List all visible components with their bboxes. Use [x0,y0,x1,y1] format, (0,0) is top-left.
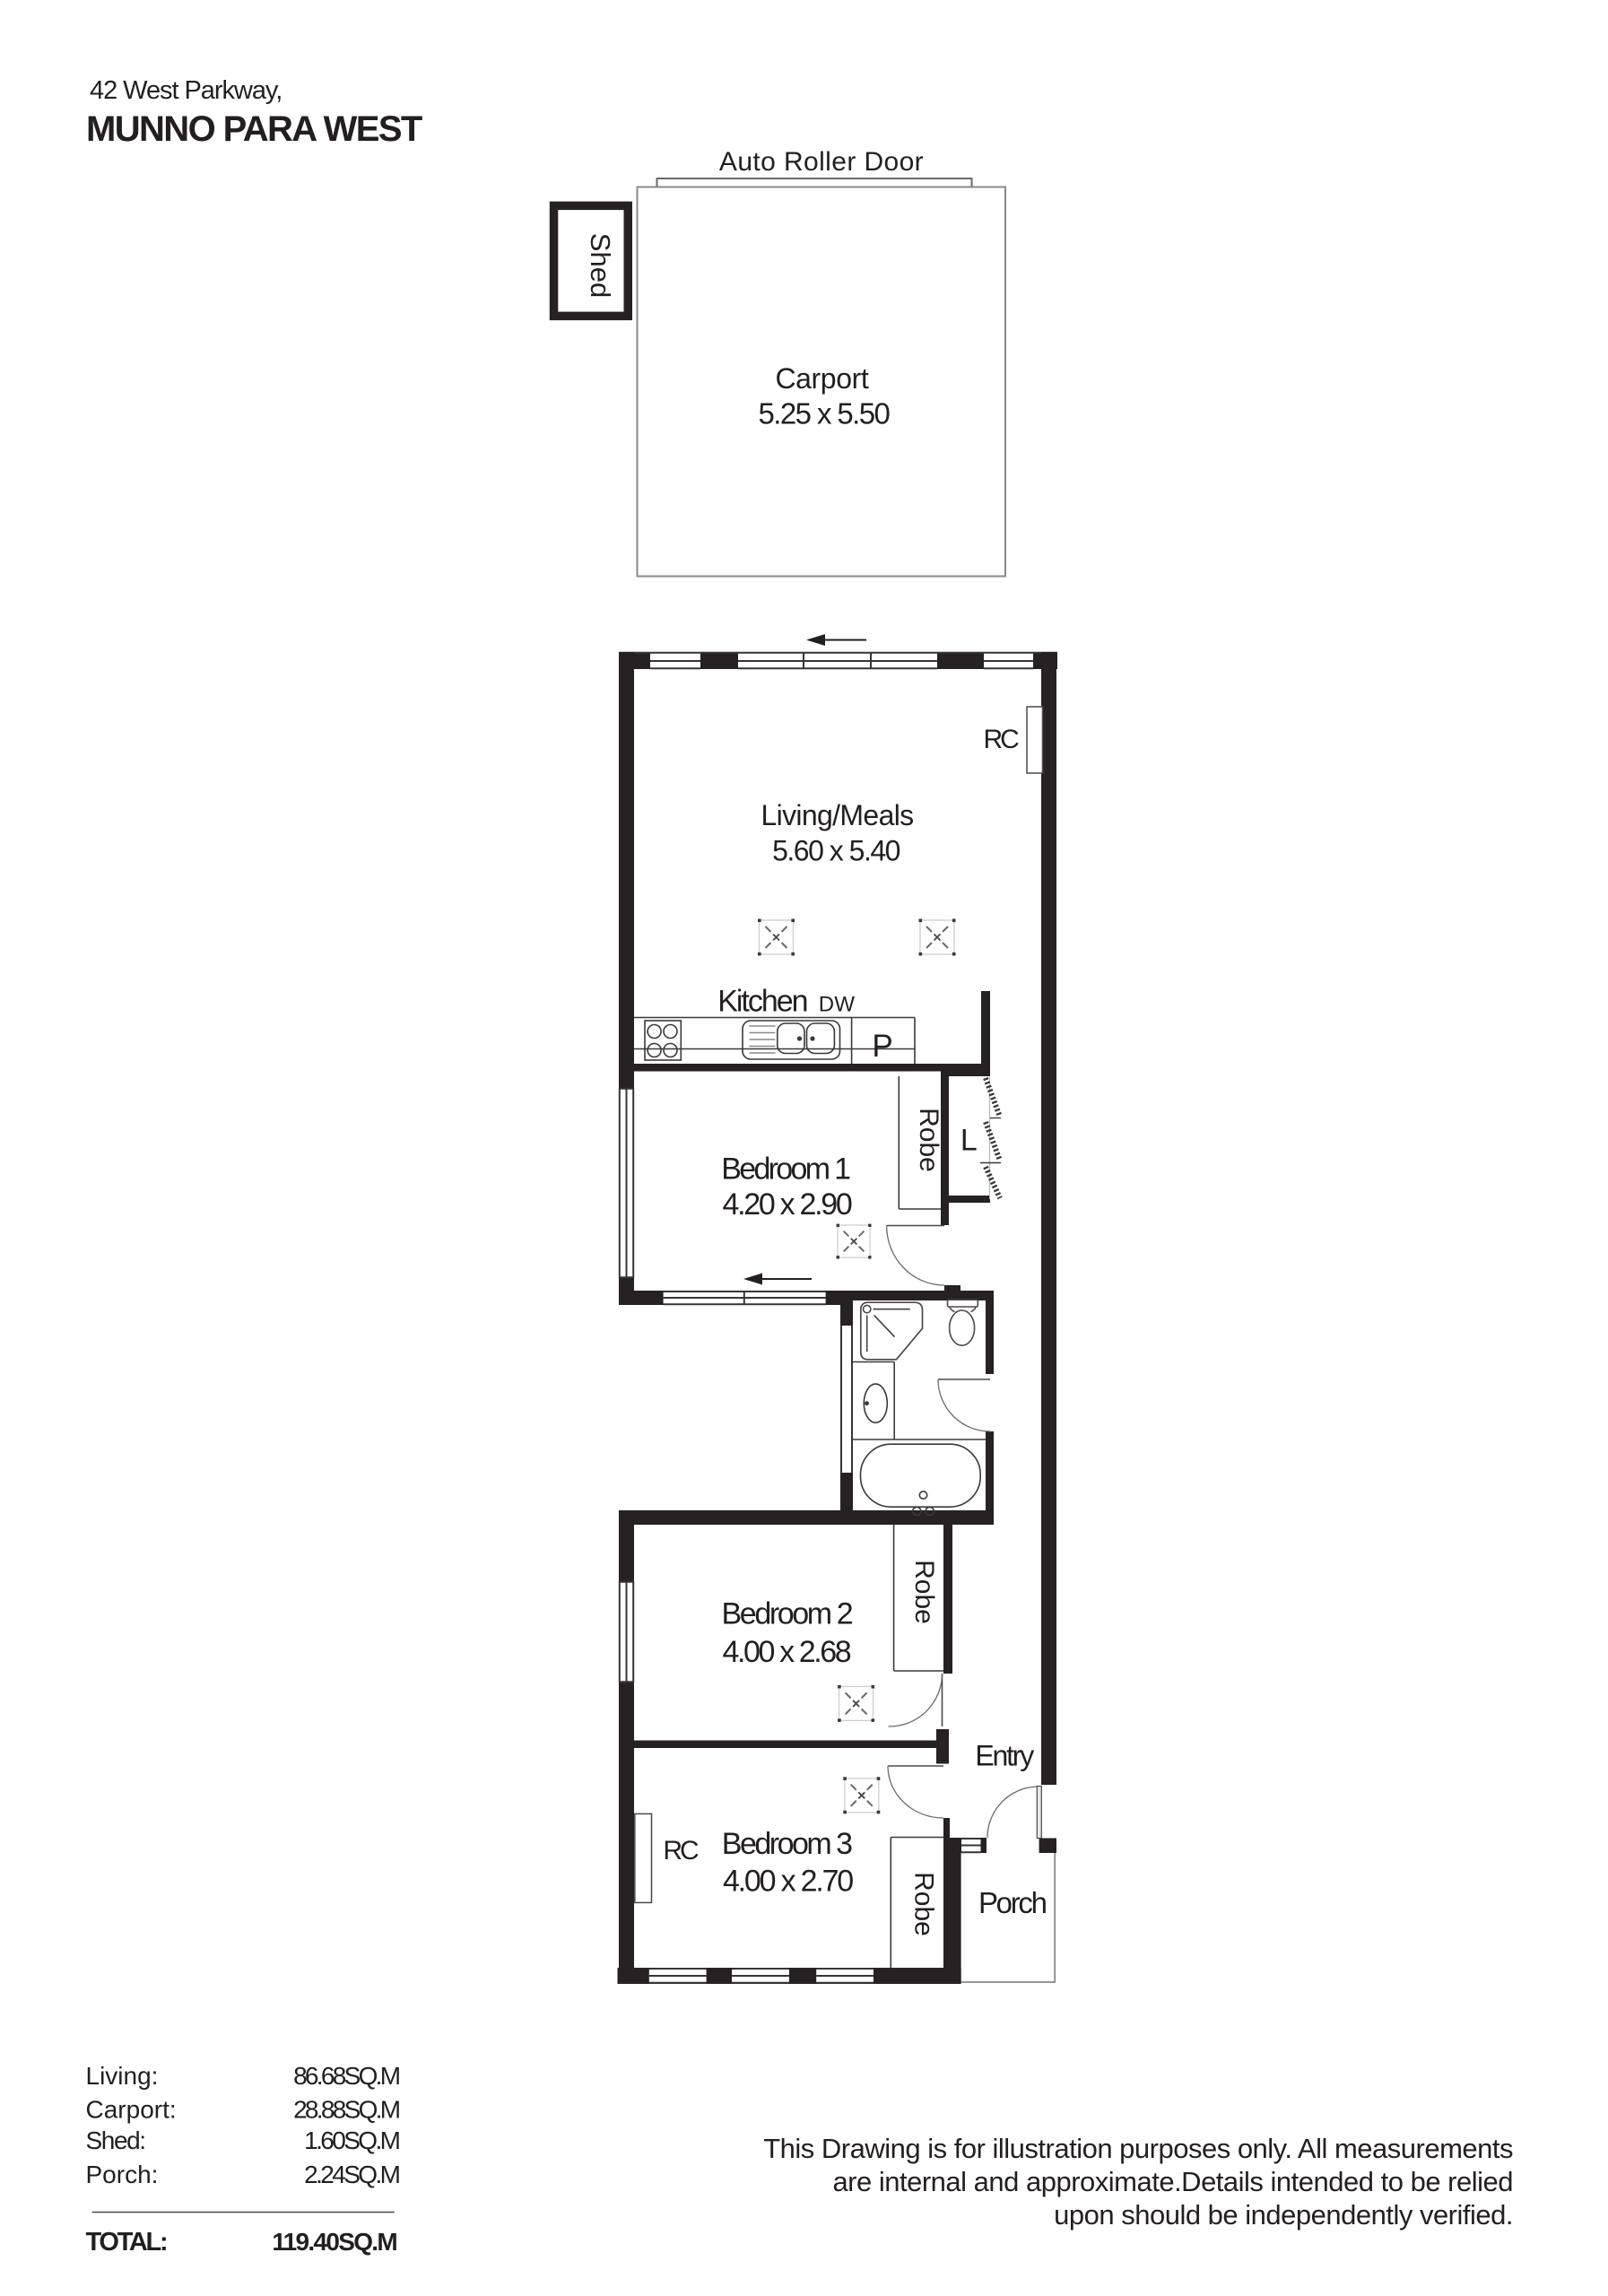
svg-text:RC: RC [984,725,1020,754]
svg-text:42 West Parkway,: 42 West Parkway, [90,76,282,105]
svg-text:Robe: Robe [909,1560,939,1624]
svg-text:Bedroom 1: Bedroom 1 [721,1152,850,1187]
svg-text:4.00 x 2.70: 4.00 x 2.70 [723,1865,853,1899]
svg-text:are internal and approximate.D: are internal and approximate.Details int… [832,2166,1513,2197]
svg-text:Porch:: Porch: [86,2161,159,2188]
svg-text:Kitchen: Kitchen [717,985,806,1019]
svg-text:86.68SQ.M: 86.68SQ.M [293,2062,400,2090]
svg-text:Auto Roller Door: Auto Roller Door [719,147,924,177]
svg-text:5.60 x 5.40: 5.60 x 5.40 [772,835,900,867]
svg-text:Carport:: Carport: [86,2096,177,2124]
svg-text:119.40SQ.M: 119.40SQ.M [272,2228,396,2256]
svg-text:Bedroom 3: Bedroom 3 [722,1827,852,1861]
svg-text:1.60SQ.M: 1.60SQ.M [304,2126,400,2154]
svg-text:P: P [872,1029,892,1064]
svg-text:This Drawing is for illustrati: This Drawing is for illustration purpose… [763,2133,1513,2164]
svg-text:2.24SQ.M: 2.24SQ.M [304,2161,400,2188]
svg-text:4.20 x 2.90: 4.20 x 2.90 [723,1187,852,1222]
svg-text:RC: RC [663,1836,699,1865]
svg-text:upon should be independently v: upon should be independently verified. [1054,2199,1513,2231]
svg-text:Robe: Robe [914,1108,943,1172]
svg-text:4.00 x 2.68: 4.00 x 2.68 [722,1635,850,1669]
svg-text:Shed: Shed [585,233,616,298]
svg-text:MUNNO PARA WEST: MUNNO PARA WEST [86,109,422,149]
svg-text:Living:: Living: [86,2062,159,2090]
svg-text:L: L [960,1124,978,1158]
svg-text:5.25 x 5.50: 5.25 x 5.50 [759,397,891,430]
svg-text:Bedroom 2: Bedroom 2 [722,1597,853,1631]
svg-text:TOTAL:: TOTAL: [86,2228,167,2257]
svg-text:Robe: Robe [908,1872,938,1936]
svg-text:Shed:: Shed: [86,2126,145,2154]
svg-text:Entry: Entry [975,1740,1034,1772]
svg-text:DW: DW [819,993,856,1017]
svg-text:Carport: Carport [775,362,868,395]
svg-text:Porch: Porch [978,1886,1047,1919]
svg-text:Living/Meals: Living/Meals [761,799,913,831]
svg-text:28.88SQ.M: 28.88SQ.M [293,2096,400,2124]
